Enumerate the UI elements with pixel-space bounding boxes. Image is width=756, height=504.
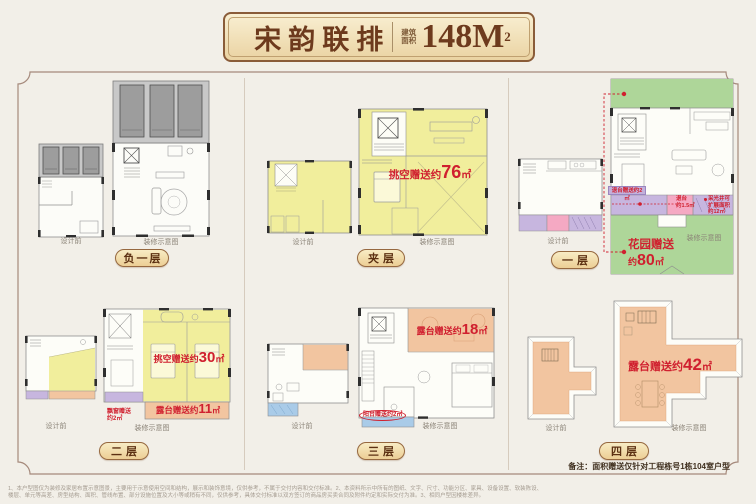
setback-connector-line [612, 200, 678, 208]
plan-b1-after [112, 80, 210, 237]
f1-garden-gift: 花园赠送 约80㎡ [628, 239, 674, 269]
label-before: 设计前 [21, 421, 91, 431]
f3-balcony-gift: 阳台赠送约2㎡ [359, 410, 406, 421]
label-after: 装修示意图 [117, 423, 187, 433]
column-divider [244, 78, 245, 470]
bay-window-area [105, 392, 143, 402]
f4-terrace-gift: 露台赠送约42㎡ [616, 356, 724, 374]
area-label: 建筑面积 [401, 29, 418, 45]
floor-badge-f4: 四层 [599, 442, 649, 460]
plan-f4-before [522, 333, 598, 421]
f2-void-gift: 挑空赠送约30㎡ [150, 350, 228, 366]
floor-badge-b1: 负一层 [115, 249, 169, 267]
garden-connector-line [596, 84, 630, 260]
gift-note: 备注：面积赠送仅针对工程栋号1栋104室户型 [430, 461, 730, 472]
plan-b1-before [38, 143, 104, 238]
plan-mezz-before [267, 160, 352, 234]
label-after: 装修示意图 [654, 423, 724, 433]
lightwell-dot [704, 198, 707, 201]
floor-badge-f1: 一层 [551, 251, 599, 269]
column-divider [508, 78, 509, 470]
label-after: 装修示意图 [405, 421, 475, 431]
disclaimer-line-1: 1、本户型图仅为装修及家居布置示意图景，主要用于示意使用空间和结构，展示和装饰意… [8, 486, 748, 493]
label-after: 装修示意图 [669, 233, 739, 243]
title-divider [392, 22, 393, 52]
label-before: 设计前 [36, 236, 106, 246]
label-after: 装修示意图 [126, 237, 196, 247]
label-before: 设计前 [267, 421, 337, 431]
f1-setback-banner: 退台赠送约2㎡ [608, 186, 646, 195]
plan-f3-before [267, 343, 349, 417]
plan-f1-before [518, 158, 603, 232]
project-name: 宋韵联排 [247, 18, 390, 57]
title-badge: 宋韵联排 建筑面积 148M 2 [223, 12, 535, 62]
label-after: 装修示意图 [402, 237, 472, 247]
plan-f2-before [25, 335, 97, 400]
floor-badge-mezz: 夹层 [357, 249, 405, 267]
mezz-void-gift: 挑空赠送约76㎡ [378, 163, 482, 182]
f3-terrace-gift: 露台赠送约18㎡ [410, 322, 494, 338]
f2-terrace-gift: 露台赠送约11㎡ [152, 401, 224, 417]
label-before: 设计前 [523, 236, 593, 246]
f2-bay-gift: 飘窗赠送 约2㎡ [107, 409, 131, 423]
label-before: 设计前 [521, 423, 591, 433]
f1-setback-box: 退台 约1.5㎡ [676, 196, 695, 209]
floor-badge-f3: 三层 [357, 442, 405, 460]
floorplan-poster: 宋韵联排 建筑面积 148M 2 [0, 0, 756, 504]
disclaimer-line-2: 楼层、单元等高差、房型结构、面积、管线布置、部分设施位置及大小等或稍有不同，仅供… [8, 493, 748, 500]
floor-badge-f2: 二层 [99, 442, 149, 460]
f1-lightwell-note: 采光井可 扩展面积 约12㎡ [708, 196, 730, 216]
area-superscript: 2 [504, 29, 511, 45]
label-before: 设计前 [268, 237, 338, 247]
area-number: 148M [421, 20, 504, 54]
